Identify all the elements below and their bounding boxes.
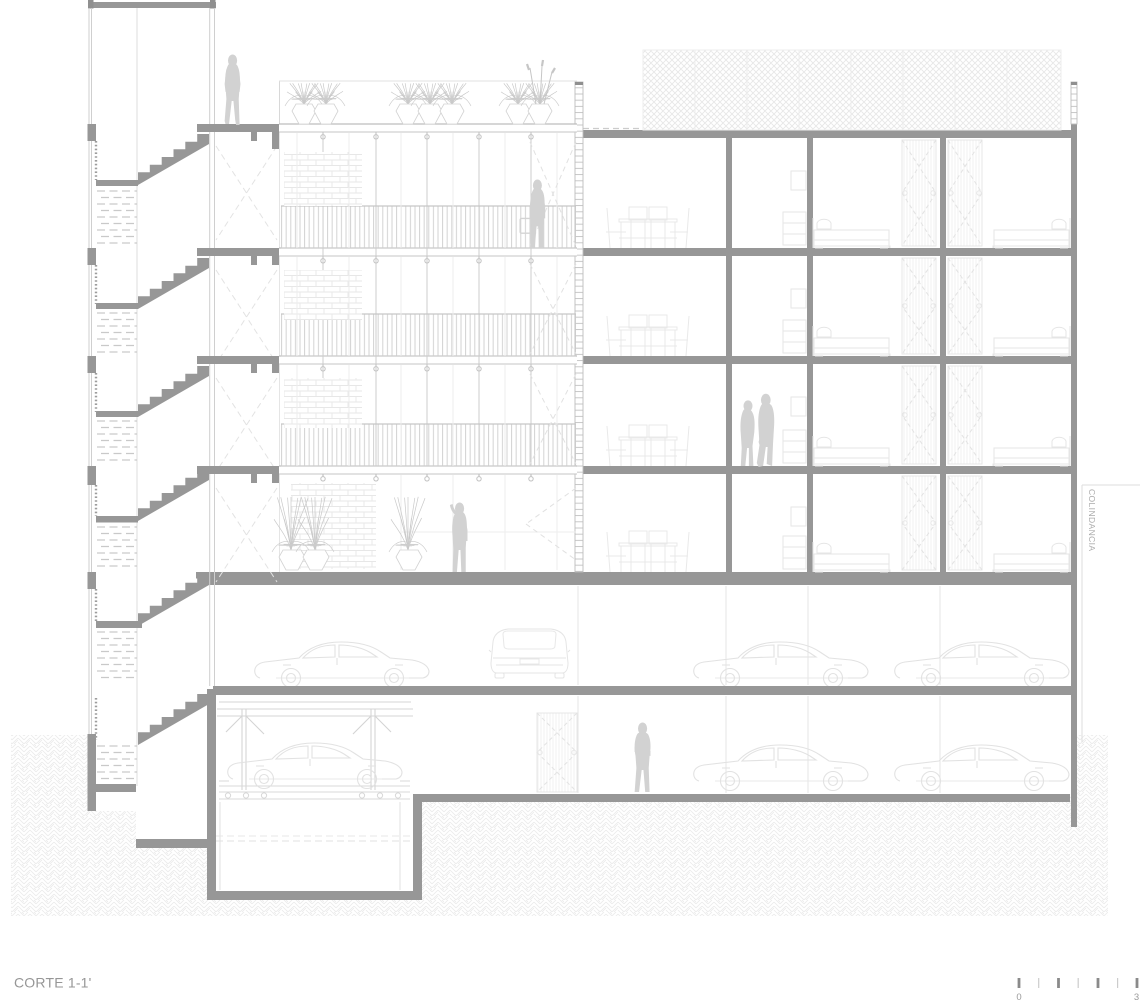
svg-text:COLINDANCIA: COLINDANCIA xyxy=(1087,489,1097,552)
svg-text:0: 0 xyxy=(1016,992,1021,1000)
svg-text:CORTE 1-1': CORTE 1-1' xyxy=(14,975,92,991)
svg-text:3: 3 xyxy=(1134,992,1139,1000)
